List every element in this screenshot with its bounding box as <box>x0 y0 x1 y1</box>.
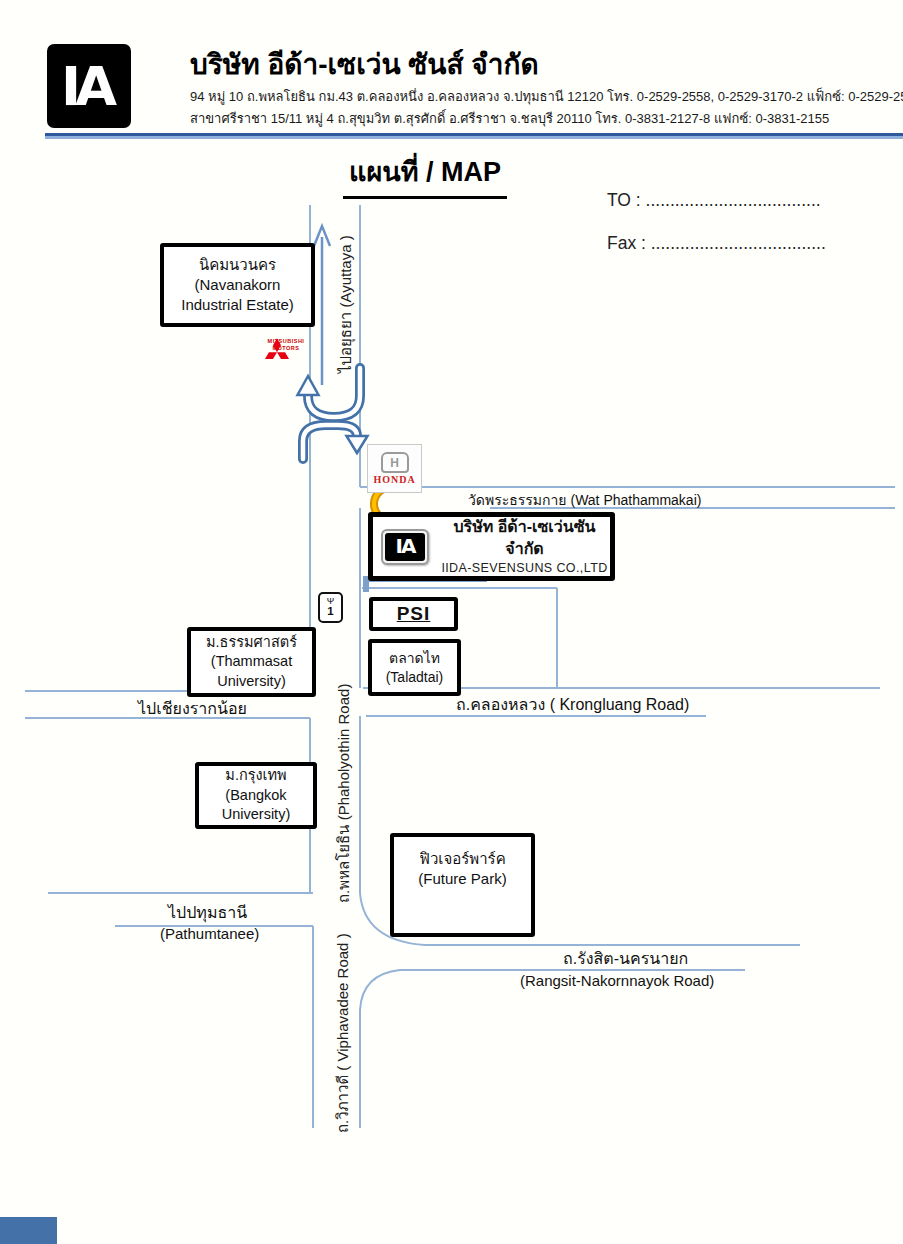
road-label-chiang-rak-noi: ไปเชียงรากน้อย <box>138 696 247 721</box>
company-box-logo-letters: IA <box>396 533 415 560</box>
company-box-name-en: IIDA-SEVENSUNS CO.,LTD <box>441 560 607 577</box>
north-direction-arrow <box>314 226 330 385</box>
road-label-wat-phathammakai: วัดพระธรรมกาย (Wat Phathammakai) <box>468 489 701 511</box>
mitsubishi-motors-logo: MITSUBISHI MOTORS <box>262 338 310 352</box>
honda-h-letter: H <box>390 457 399 469</box>
navanakorn-line1: นิคมนวนคร <box>199 255 276 275</box>
company-box-logo-frame: IA <box>381 529 429 565</box>
road-label-rangsit-th: ถ.รังสิต-นครนายก <box>563 946 688 971</box>
thammasat-line2: (Thammasat <box>211 652 292 672</box>
road-label-pathumtanee-th: ไปปทุมธานี <box>168 900 247 925</box>
road-label-rangsit-en: (Rangsit-Nakornnayok Road) <box>520 972 714 989</box>
taladtai-box: ตลาดไท (Taladtai) <box>368 639 461 696</box>
road-label-pathumtanee-en: (Pathumtanee) <box>160 925 259 942</box>
highway-1-marker: Ψ 1 <box>318 592 343 623</box>
honda-logo: H HONDA <box>367 444 422 493</box>
thammasat-line1: ม.ธรรมศาสตร์ <box>206 633 297 653</box>
future-park-box: ฟิวเจอร์พาร์ค (Future Park) <box>390 833 535 937</box>
map-document-page: IA บริษัท อีด้า-เซเว่น ซันส์ จำกัด 94 หม… <box>0 0 903 1244</box>
honda-h-icon: H <box>381 452 409 473</box>
mitsubishi-diamonds-icon <box>262 338 292 362</box>
navanakorn-box: นิคมนวนคร (Navanakorn Industrial Estate) <box>160 243 315 327</box>
company-box-name-th: บริษัท อีด้า-เซเว่นซัน จำกัด <box>439 516 610 559</box>
psi-box: PSI <box>369 597 458 631</box>
bangkok-university-line2: (Bangkok <box>225 786 286 806</box>
navanakorn-line3: Industrial Estate) <box>181 295 294 315</box>
company-box-text: บริษัท อีด้า-เซเว่นซัน จำกัด IIDA-SEVENS… <box>439 516 610 576</box>
uturn-arrow-south <box>303 425 368 459</box>
bangkok-university-box: ม.กรุงเทพ (Bangkok University) <box>195 762 317 829</box>
company-destination-box: IA บริษัท อีด้า-เซเว่นซัน จำกัด IIDA-SEV… <box>368 512 615 581</box>
road-label-krongluang: ถ.คลองหลวง ( Krongluang Road) <box>456 692 689 717</box>
road-label-ayuttaya: ไปอยุธยา (Ayuttaya ) <box>334 235 358 373</box>
future-park-line2: (Future Park) <box>418 869 506 889</box>
navanakorn-line2: (Navanakorn <box>195 275 281 295</box>
road-label-phaholyothin: ถ.พหลโยธิน (Phaholyothin Road) <box>332 684 356 903</box>
future-park-line1: ฟิวเจอร์พาร์ค <box>419 849 505 869</box>
taladtai-line1: ตลาดไท <box>389 649 440 668</box>
uturn-arrow-north <box>298 368 361 417</box>
thammasat-line3: University) <box>217 672 285 692</box>
company-box-logo: IA <box>385 533 425 561</box>
thammasat-box: ม.ธรรมศาสตร์ (Thammasat University) <box>187 627 316 697</box>
psi-label: PSI <box>397 601 431 627</box>
bangkok-university-line3: University) <box>222 805 290 825</box>
bangkok-university-line1: ม.กรุงเทพ <box>225 766 286 786</box>
highway-number: 1 <box>327 606 333 618</box>
page-footer-blue-bar <box>0 1217 57 1244</box>
road-label-viphavadee: ถ.วิภาวดี ( Viphavadee Road ) <box>331 933 355 1133</box>
honda-wordmark: HONDA <box>373 474 415 485</box>
taladtai-line2: (Taladtai) <box>386 668 444 687</box>
